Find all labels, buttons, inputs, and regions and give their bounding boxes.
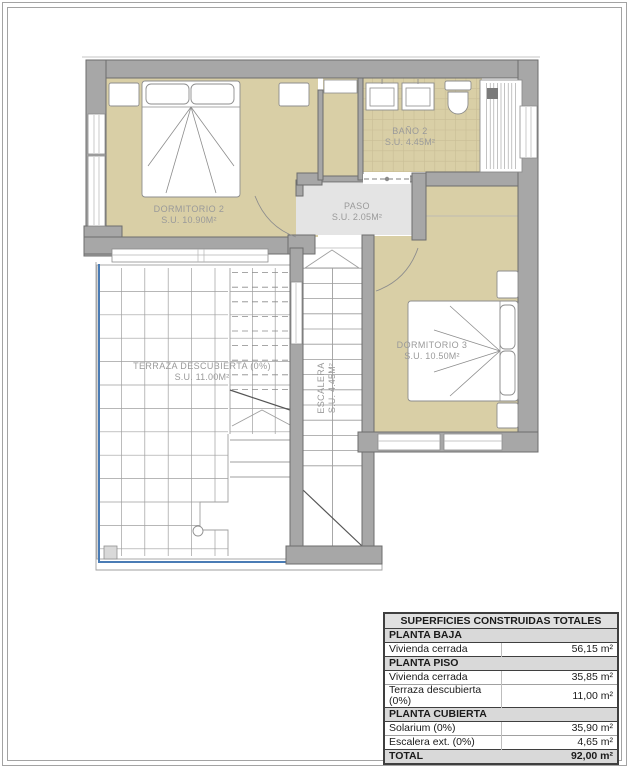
areas-table-title-row: SUPERFICIES CONSTRUIDAS TOTALES bbox=[384, 613, 618, 629]
toilet bbox=[445, 81, 471, 114]
window-stair-terrace bbox=[291, 282, 302, 344]
sink-2 bbox=[402, 79, 434, 110]
shower bbox=[480, 80, 522, 172]
row-label: Vivienda cerrada bbox=[384, 643, 501, 657]
wall-closet-partition bbox=[318, 90, 323, 180]
bath-door-knob bbox=[385, 177, 389, 181]
floor-dormitorio-3-closet bbox=[426, 186, 518, 240]
wall-paso-east bbox=[412, 173, 426, 240]
row-value bbox=[501, 657, 618, 671]
window-dorm2-left-1 bbox=[88, 114, 105, 154]
areas-row-vivienda-cerrada: Vivienda cerrada35,85 m² bbox=[384, 671, 618, 685]
row-value: 56,15 m² bbox=[501, 643, 618, 657]
row-value bbox=[501, 629, 618, 643]
floor-door-gap bbox=[296, 196, 303, 237]
stairwell bbox=[303, 248, 362, 546]
railing-post bbox=[104, 546, 117, 559]
row-value bbox=[501, 708, 618, 722]
areas-row-vivienda-cerrada: Vivienda cerrada56,15 m² bbox=[384, 643, 618, 657]
wall-stair-bottom bbox=[286, 546, 382, 564]
window-dorm3-bottom-2 bbox=[444, 434, 502, 450]
areas-row-planta-baja: PLANTA BAJA bbox=[384, 629, 618, 643]
areas-row-planta-cubierta: PLANTA CUBIERTA bbox=[384, 708, 618, 722]
row-value: 4,65 m² bbox=[501, 736, 618, 750]
row-label: Escalera ext. (0%) bbox=[384, 736, 501, 750]
row-value: 92,00 m² bbox=[501, 750, 618, 765]
areas-row-total: TOTAL92,00 m² bbox=[384, 750, 618, 765]
areas-table-body: PLANTA BAJAVivienda cerrada56,15 m²PLANT… bbox=[384, 629, 618, 765]
row-label: PLANTA PISO bbox=[384, 657, 501, 671]
areas-table-title: SUPERFICIES CONSTRUIDAS TOTALES bbox=[384, 613, 618, 629]
drain-circle bbox=[193, 526, 203, 536]
row-label: PLANTA BAJA bbox=[384, 629, 501, 643]
wall-top bbox=[86, 60, 538, 78]
row-label: Vivienda cerrada bbox=[384, 671, 501, 685]
window-dorm2-terrace bbox=[112, 249, 268, 262]
wall-closet-bath bbox=[358, 78, 363, 180]
row-value: 35,90 m² bbox=[501, 722, 618, 736]
plan-sheet: { "sheet": {"width": 629, "height": 768}… bbox=[0, 0, 629, 768]
areas-row-solarium-0: Solarium (0%)35,90 m² bbox=[384, 722, 618, 736]
row-label: Terraza descubierta (0%) bbox=[384, 685, 501, 708]
shower-drain bbox=[487, 88, 498, 99]
terrace bbox=[97, 264, 299, 562]
areas-table: SUPERFICIES CONSTRUIDAS TOTALES PLANTA B… bbox=[383, 612, 619, 764]
row-value: 11,00 m² bbox=[501, 685, 618, 708]
window-bath-right bbox=[520, 106, 537, 158]
row-label: PLANTA CUBIERTA bbox=[384, 708, 501, 722]
wall-stair-east bbox=[362, 235, 374, 546]
terrace-lower-white bbox=[228, 434, 298, 558]
areas-row-escalera-ext-0: Escalera ext. (0%)4,65 m² bbox=[384, 736, 618, 750]
areas-row-planta-piso: PLANTA PISO bbox=[384, 657, 618, 671]
sink-1 bbox=[366, 79, 398, 110]
row-label: TOTAL bbox=[384, 750, 501, 765]
row-label: Solarium (0%) bbox=[384, 722, 501, 736]
row-value: 35,85 m² bbox=[501, 671, 618, 685]
areas-row-terraza-descubierta-0: Terraza descubierta (0%)11,00 m² bbox=[384, 685, 618, 708]
window-dorm2-left-2 bbox=[88, 156, 105, 226]
window-dorm3-bottom-1 bbox=[378, 434, 440, 450]
floor-paso bbox=[303, 183, 412, 235]
closet-niche bbox=[324, 80, 357, 93]
